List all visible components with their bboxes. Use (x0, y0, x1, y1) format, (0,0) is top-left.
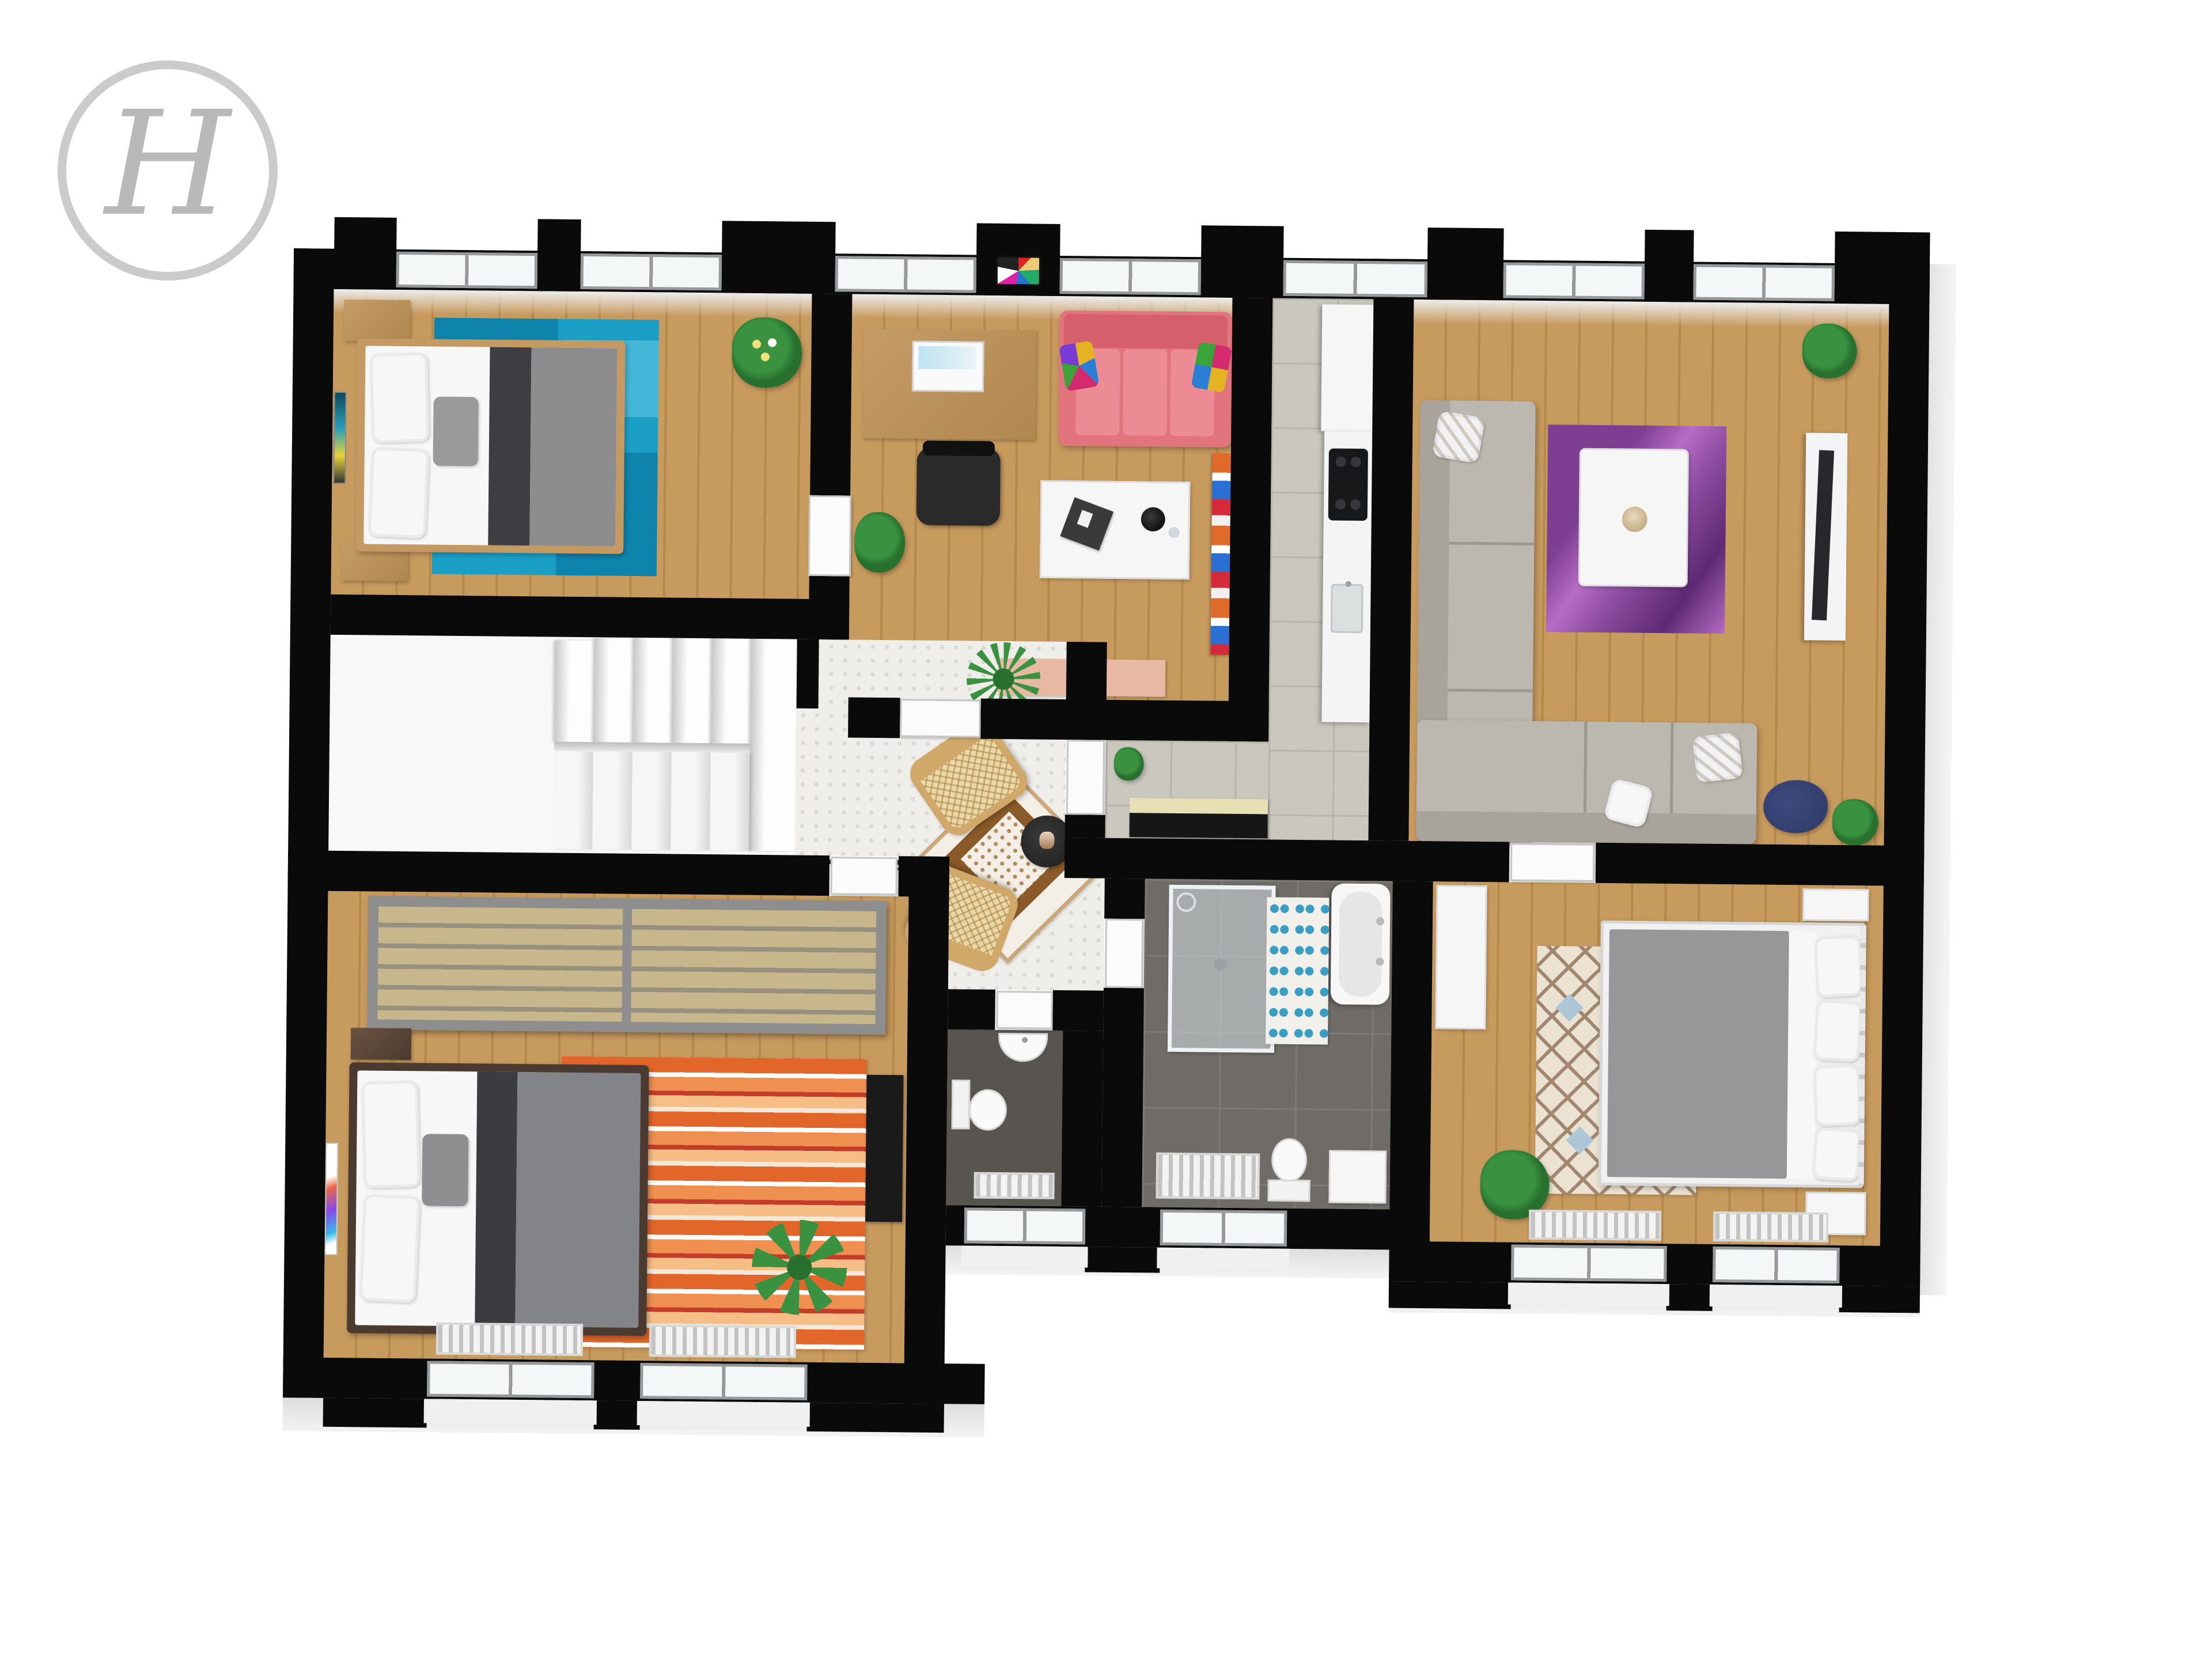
window (1713, 1247, 1840, 1283)
wc-radiator (974, 1172, 1054, 1199)
tv-stand (1804, 433, 1847, 641)
shower-head (1176, 892, 1196, 912)
bench-front (1129, 813, 1267, 838)
window (1283, 260, 1427, 297)
blue-petal-rug (1266, 897, 1329, 1044)
wall-pillar (1666, 1284, 1713, 1311)
living-plant-corner (1832, 799, 1878, 846)
window-bay (961, 1245, 1088, 1267)
wall-bathroom-left-a (1104, 878, 1145, 919)
floor-plan (282, 248, 1959, 1480)
pillow (1814, 935, 1862, 997)
rug-diamond (1566, 1127, 1593, 1154)
wall-bedroom1-right-b (809, 576, 850, 640)
sofa-seam (1448, 688, 1533, 692)
colorful-cushion (1191, 342, 1232, 393)
window (640, 1363, 808, 1400)
pillow (1813, 999, 1862, 1063)
window (1503, 262, 1645, 299)
duvet-gray (1607, 929, 1789, 1179)
stair-step (631, 752, 672, 850)
faucet (1346, 581, 1351, 587)
living-plant (1802, 323, 1857, 378)
wc-toilet-bowl (969, 1089, 1007, 1131)
wall-art (333, 392, 347, 484)
stair-step (710, 752, 750, 851)
wall-pillar (594, 1400, 640, 1430)
burner (1350, 499, 1361, 510)
sliding-wardrobe (367, 896, 887, 1035)
wall-office-bottom-b (980, 699, 1269, 742)
pillow (368, 447, 430, 539)
duvet (529, 347, 617, 546)
white-frame-bed (1599, 921, 1866, 1188)
tv-test-card-art (995, 255, 1042, 287)
faucet (1022, 1037, 1028, 1043)
flowers (748, 335, 783, 367)
bathtub (1331, 884, 1391, 1005)
wardrobe-door (631, 909, 876, 1024)
wall-pillar (1427, 228, 1503, 300)
pillow (359, 1194, 420, 1303)
wall-wc-top-b (1052, 990, 1104, 1031)
wall-art-colorful (324, 1143, 338, 1255)
accent-pillow (433, 397, 479, 467)
sofa-seam (1670, 722, 1674, 813)
wc-toilet-tank (952, 1080, 971, 1129)
wall-pillar (807, 1403, 944, 1433)
door-bedroom-bottom-right (1510, 843, 1595, 882)
pink-sofa (1058, 310, 1232, 448)
wall-pillar (1389, 1282, 1511, 1309)
wall-mid-horizontal-b (1596, 843, 1925, 886)
stair-step (671, 752, 711, 851)
wall-wc-right (1061, 1031, 1103, 1207)
office-chair (916, 448, 1001, 526)
wall-inner-face (1414, 300, 1889, 328)
door-wc (996, 991, 1053, 1029)
wall-bedroom2-right (904, 856, 949, 1404)
window (1059, 258, 1201, 295)
serving-tray (1060, 497, 1113, 551)
brand-logo-letter: H (105, 80, 230, 248)
pillow (1812, 1127, 1861, 1182)
wall-bathroom-right (1389, 881, 1433, 1242)
stair-step (632, 637, 673, 745)
sofa-pillow (1692, 732, 1743, 783)
window-bay (1508, 1282, 1669, 1306)
navy-beanbag (1763, 780, 1828, 834)
wall-bedroom1-bottom (331, 594, 850, 640)
flower-plant (732, 317, 802, 388)
rug-diamond (1556, 994, 1584, 1021)
faucet (1376, 957, 1384, 965)
office-chair-back (923, 441, 995, 456)
cup (1168, 527, 1179, 538)
bath-toilet-tank (1267, 1179, 1310, 1202)
duvet-band (488, 347, 531, 546)
nightstand-dark (351, 1028, 412, 1060)
stair-step (553, 751, 593, 850)
duvet (515, 1072, 641, 1328)
radiator (1713, 1211, 1828, 1243)
wall-hall-kitchen-stub-b (1065, 815, 1105, 838)
bowl (1622, 506, 1647, 532)
sofa-back-edge (1416, 811, 1756, 844)
office-plant (854, 512, 906, 573)
wall-office-right (1228, 298, 1272, 742)
table-decor (1039, 832, 1054, 849)
shower (1168, 885, 1276, 1053)
sofa-seat (1123, 349, 1167, 436)
stair-step (711, 632, 751, 748)
sofa-pillow (1432, 411, 1485, 464)
living-coffee-table (1578, 448, 1689, 588)
window-bay (424, 1399, 597, 1425)
wall-hall-kitchen-stub-a (1066, 642, 1107, 740)
tv (1812, 450, 1834, 620)
wall-pillar (334, 217, 397, 290)
wall-pillar (537, 219, 581, 291)
wardrobe-door (377, 907, 623, 1022)
kitchen-bench (1129, 798, 1268, 838)
coffee-table (1040, 480, 1191, 579)
sofa-seam (1449, 541, 1534, 545)
wall-bathroom-left-b (1101, 988, 1144, 1207)
brand-logo: H (58, 60, 278, 281)
monstera-plant (751, 1219, 847, 1316)
potted-plant (1113, 747, 1144, 781)
double-bed-dark (347, 1062, 649, 1336)
wall-mid-horizontal-a (1065, 838, 1510, 882)
window (427, 1361, 594, 1398)
wall-pillar (1200, 225, 1283, 298)
radiator (436, 1323, 584, 1356)
teapot (1141, 507, 1165, 531)
window (1160, 1210, 1287, 1247)
nightstand-white (1802, 888, 1869, 921)
window-bay (637, 1401, 810, 1427)
door-bedroom-bottom-left (830, 857, 897, 895)
bookshelf (1210, 453, 1230, 655)
burner (1336, 457, 1346, 467)
cooktop (1328, 448, 1368, 521)
stair-turn (749, 631, 796, 851)
double-bed (355, 338, 626, 554)
pillow (361, 1081, 421, 1188)
stair-flight-divider (554, 742, 750, 753)
window-bay (1157, 1248, 1289, 1270)
wall-bedroom2-top-a (287, 850, 829, 896)
pillow (370, 353, 430, 443)
wall-pillar (1644, 230, 1694, 302)
duvet-band (475, 1071, 517, 1327)
wall-wc-top-a (948, 989, 995, 1030)
wall-pillar (1085, 1247, 1160, 1272)
wall-office-bottom-a (848, 697, 900, 738)
colorful-cushion (1059, 340, 1099, 391)
door-kitchen (1066, 740, 1105, 815)
kitchen-counter (1321, 431, 1373, 722)
wall-bottom-left (283, 1357, 985, 1404)
tray-item (1077, 510, 1093, 528)
burner (1335, 499, 1346, 510)
window (396, 252, 538, 289)
shower-drain (1214, 959, 1226, 971)
pillow (1813, 1065, 1861, 1126)
window (1511, 1245, 1667, 1282)
door-bathroom (1105, 919, 1143, 988)
door-bedroom-top-left (808, 495, 851, 577)
accent-pillow (422, 1134, 468, 1206)
faucet (1376, 917, 1384, 925)
wall-pillar (323, 1398, 427, 1428)
kitchen-sink (1331, 584, 1363, 633)
window (964, 1207, 1086, 1244)
wall-pillar (721, 221, 835, 294)
sofa-seam (1584, 722, 1588, 813)
laptop-screen (918, 346, 976, 370)
wall-stair-stub (797, 639, 819, 709)
tv-dresser (865, 1075, 903, 1222)
wall-pillar (1834, 232, 1930, 305)
wall-kitchen-living-divider (1368, 259, 1414, 841)
kitchen-tall-cabinet (1321, 304, 1374, 431)
wall-pillar (1839, 1286, 1920, 1313)
door-office (900, 699, 981, 737)
bench-top (1130, 798, 1268, 814)
stair-step (592, 751, 632, 850)
radiator (1529, 1210, 1661, 1241)
window (835, 256, 977, 293)
window-bay (1710, 1285, 1842, 1308)
wall-bedroom1-right-a (810, 294, 852, 496)
sheet-fold (1787, 931, 1817, 1179)
bathtub-basin (1339, 892, 1382, 997)
stair-step (672, 635, 712, 747)
stair-step (593, 638, 634, 744)
nightstand (344, 300, 411, 342)
towel-radiator (1156, 1153, 1260, 1200)
white-wardrobe (1435, 885, 1487, 1029)
desk (862, 329, 1036, 440)
bath-cabinet (1328, 1150, 1387, 1204)
window (1693, 264, 1835, 301)
radiator (649, 1324, 797, 1358)
stair-step (554, 641, 594, 743)
bedroom-plant (1480, 1150, 1550, 1219)
wall-bedroom2-top-b (898, 856, 949, 897)
burner (1351, 457, 1361, 467)
window (581, 253, 722, 290)
laptop (912, 340, 984, 392)
